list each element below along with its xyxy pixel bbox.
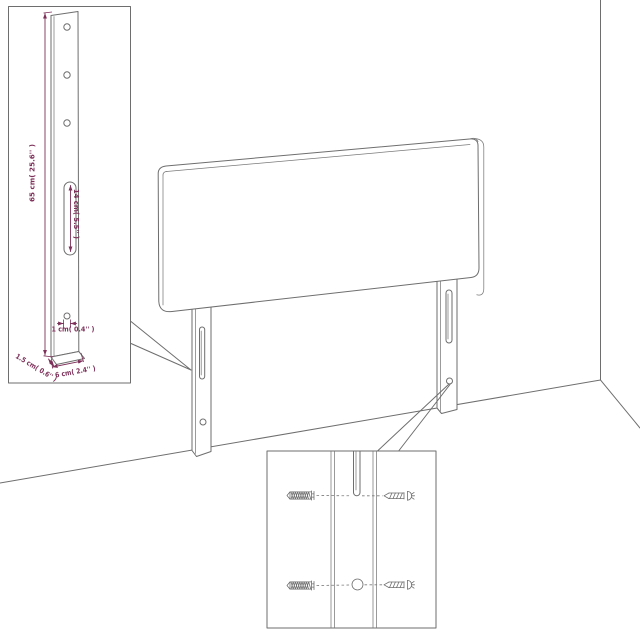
product-diagram-page: 65 cm( 25.6'' ) 14 cm( 5.5'' ) 1 cm( 0.4… <box>0 0 640 640</box>
leg-detail-inset: 65 cm( 25.6'' ) 14 cm( 5.5'' ) 1 cm( 0.4… <box>9 7 131 384</box>
screw-hole-icon <box>200 419 206 425</box>
panel-front <box>158 139 479 312</box>
headboard-right-leg <box>437 266 457 414</box>
callout-lines <box>131 322 450 451</box>
callout-wedge-left <box>131 322 191 371</box>
hole-label: 1 cm( 0.4'' ) <box>52 326 95 334</box>
mounting-slot-icon <box>200 327 205 379</box>
screw-hole-icon <box>64 72 70 78</box>
headboard-diagram-canvas: 65 cm( 25.6'' ) 14 cm( 5.5'' ) 1 cm( 0.4… <box>0 0 640 640</box>
screw-hole-icon <box>64 120 70 126</box>
mounting-slot-icon <box>446 290 452 343</box>
headboard-panel <box>158 138 484 311</box>
screw-hole-icon <box>64 313 70 319</box>
screw-hole-icon <box>64 24 70 30</box>
headboard-left-leg <box>192 298 211 457</box>
inset-border <box>267 451 436 628</box>
screw-hole-icon <box>447 378 453 384</box>
mounting-detail-inset <box>267 451 436 628</box>
height-label: 65 cm( 25.6'' ) <box>29 144 37 202</box>
floor-line-right <box>601 380 640 428</box>
slot-label: 14 cm( 5.5'' ) <box>72 189 80 239</box>
